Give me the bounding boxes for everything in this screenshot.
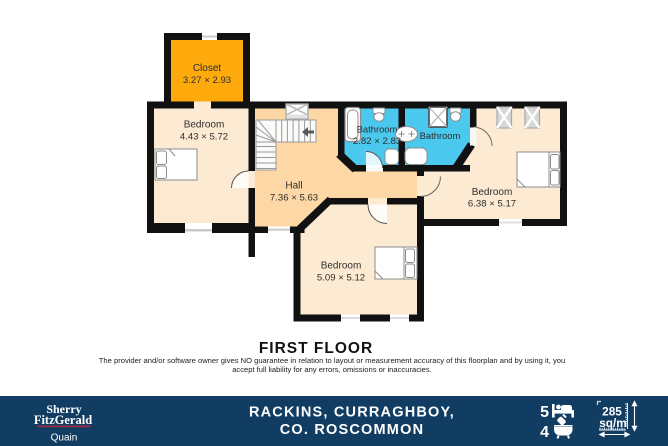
svg-text:Bathroom: Bathroom — [357, 124, 398, 135]
svg-text:6.38 × 5.17: 6.38 × 5.17 — [468, 199, 516, 210]
svg-text:5.09 × 5.12: 5.09 × 5.12 — [317, 273, 365, 284]
svg-text:3.27 × 2.93: 3.27 × 2.93 — [183, 75, 231, 86]
svg-text:FitzGerald: FitzGerald — [34, 413, 92, 427]
svg-text:FIRST FLOOR: FIRST FLOOR — [259, 340, 373, 357]
svg-text:4: 4 — [540, 424, 549, 441]
svg-text:Bedroom: Bedroom — [184, 120, 225, 131]
svg-text:accept full liability for any: accept full liability for any errors, om… — [232, 365, 432, 374]
svg-text:5: 5 — [540, 404, 549, 421]
svg-text:The provider and/or software o: The provider and/or software owner gives… — [99, 356, 565, 365]
svg-text:Bedroom: Bedroom — [321, 261, 362, 272]
svg-text:Bedroom: Bedroom — [472, 187, 513, 198]
svg-text:Closet: Closet — [193, 63, 222, 74]
svg-text:Bathroom: Bathroom — [420, 130, 461, 141]
svg-text:CO. ROSCOMMON: CO. ROSCOMMON — [280, 422, 425, 438]
svg-text:7.36 × 5.63: 7.36 × 5.63 — [270, 193, 318, 204]
svg-text:4.43 × 5.72: 4.43 × 5.72 — [180, 132, 228, 143]
svg-text:Hall: Hall — [285, 181, 302, 192]
svg-text:2.82 × 2.83: 2.82 × 2.83 — [353, 136, 401, 147]
svg-text:RACKINS, CURRAGHBOY,: RACKINS, CURRAGHBOY, — [249, 404, 455, 420]
svg-text:Quain: Quain — [51, 433, 78, 444]
